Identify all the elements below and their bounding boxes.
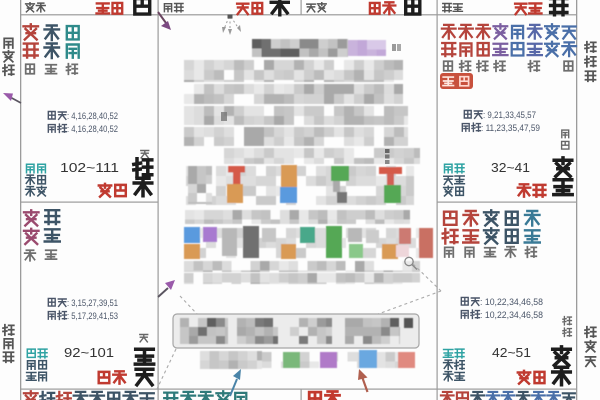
svg-text:: 11,23,35,47,59: : 11,23,35,47,59 [481, 123, 540, 133]
svg-text:: 10,22,34,46,58: : 10,22,34,46,58 [480, 310, 543, 320]
svg-text:: 9,21,33,45,57: : 9,21,33,45,57 [483, 110, 536, 120]
svg-text:32~41: 32~41 [491, 160, 530, 175]
svg-text:: 5,17,29,41,53: : 5,17,29,41,53 [67, 311, 118, 321]
svg-text:: 4,16,28,40,52: : 4,16,28,40,52 [67, 111, 118, 121]
svg-text:102~111: 102~111 [60, 160, 119, 175]
svg-text:: 10,22,34,46,58: : 10,22,34,46,58 [480, 297, 543, 307]
svg-text:92~101: 92~101 [64, 345, 114, 360]
svg-text:: 3,15,27,39,51: : 3,15,27,39,51 [67, 298, 118, 308]
svg-text:42~51: 42~51 [492, 345, 531, 360]
svg-text:: 4,16,28,40,52: : 4,16,28,40,52 [67, 124, 118, 134]
